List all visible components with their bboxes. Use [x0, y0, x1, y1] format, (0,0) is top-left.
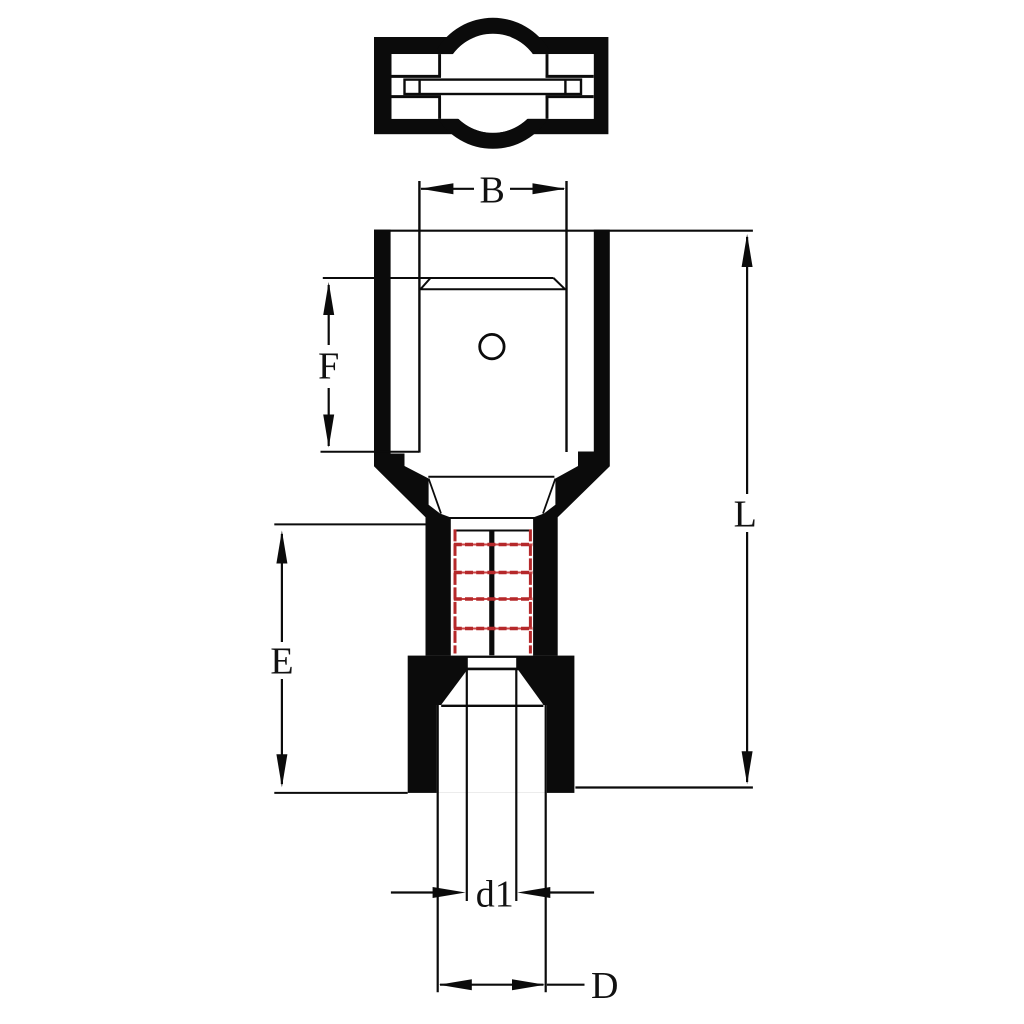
- svg-text:d1: d1: [476, 874, 514, 916]
- svg-text:D: D: [591, 965, 618, 1007]
- svg-text:E: E: [270, 640, 293, 682]
- svg-text:B: B: [480, 169, 505, 211]
- svg-text:F: F: [318, 346, 339, 388]
- svg-text:L: L: [734, 494, 757, 536]
